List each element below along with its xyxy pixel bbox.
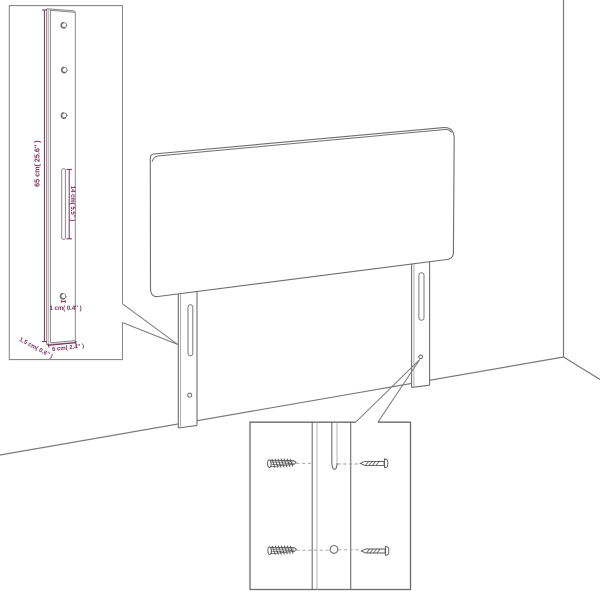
svg-text:1 cm( 0.4'' ): 1 cm( 0.4'' )	[49, 306, 81, 312]
svg-text:65 cm( 25.6'' ): 65 cm( 25.6'' )	[32, 140, 41, 187]
svg-text:6 cm( 2.4'' ): 6 cm( 2.4'' )	[52, 344, 85, 353]
svg-text:14 cm( 5.5'' ): 14 cm( 5.5'' )	[69, 186, 75, 222]
